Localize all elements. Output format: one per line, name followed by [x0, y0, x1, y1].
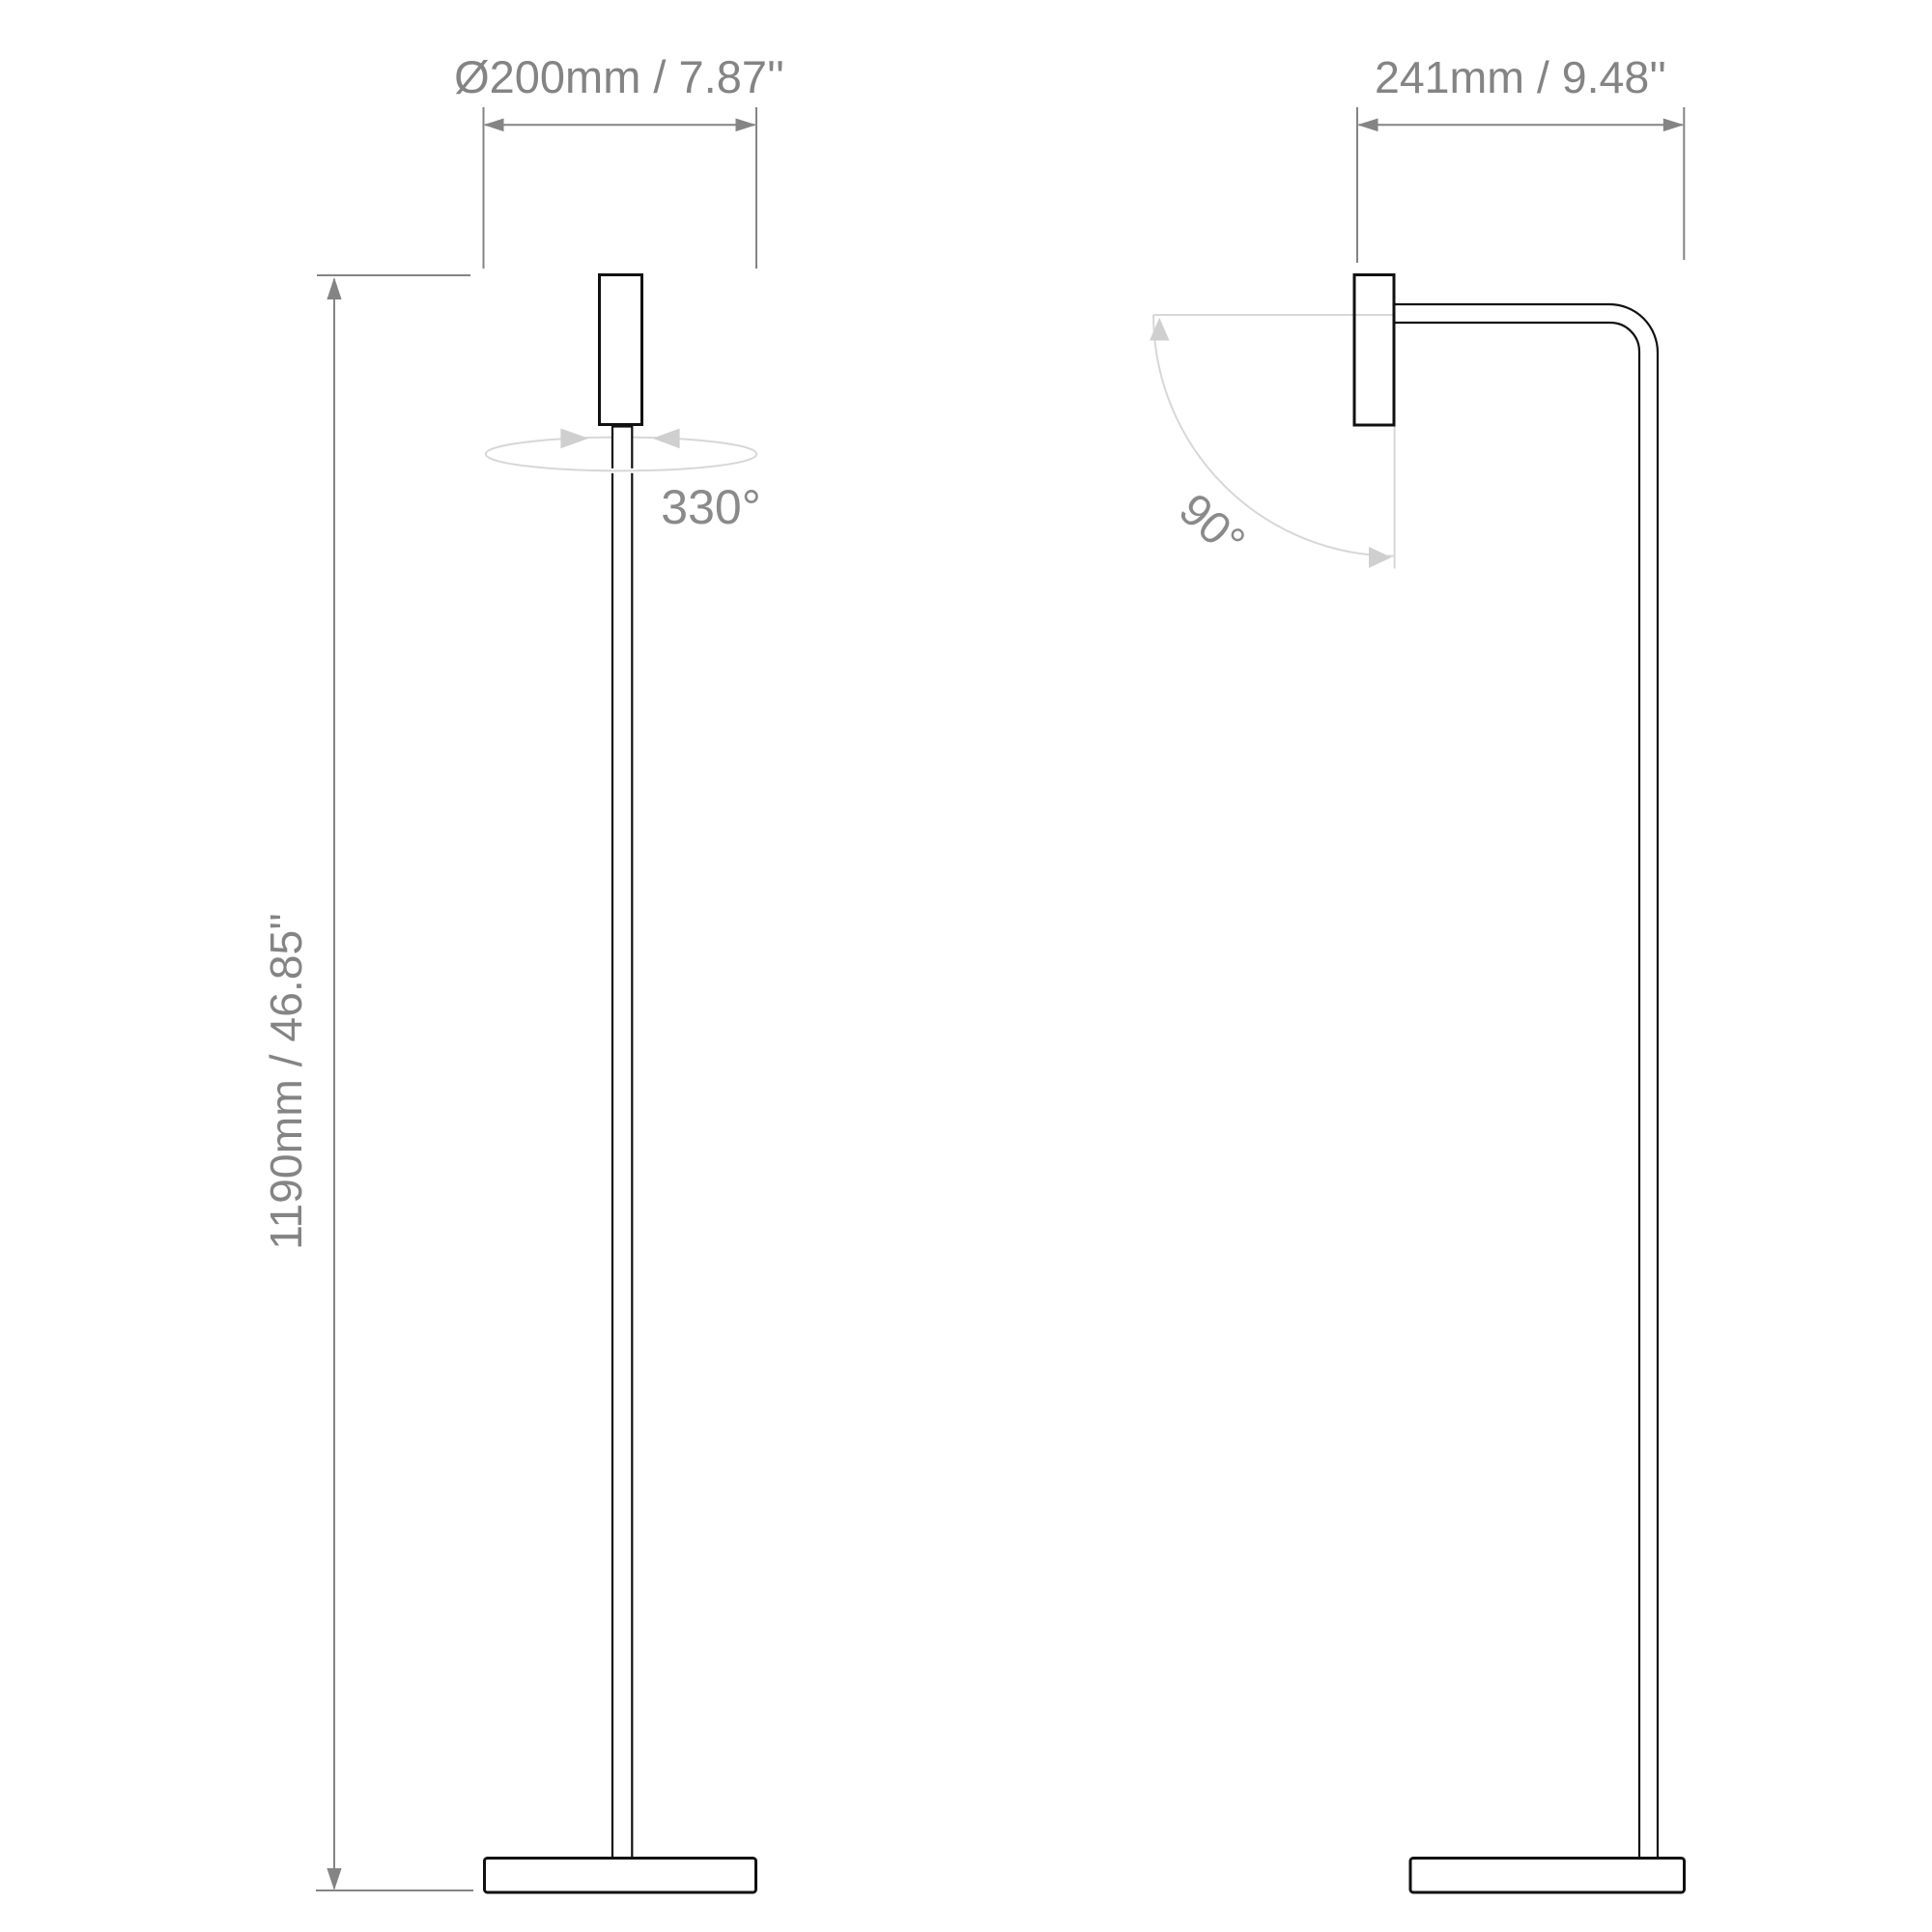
- svg-text:Ø200mm / 7.87'': Ø200mm / 7.87'': [454, 51, 784, 102]
- svg-text:241mm / 9.48'': 241mm / 9.48'': [1375, 52, 1666, 102]
- svg-text:330°: 330°: [661, 480, 760, 534]
- svg-text:1190mm / 46.85'': 1190mm / 46.85'': [261, 913, 311, 1250]
